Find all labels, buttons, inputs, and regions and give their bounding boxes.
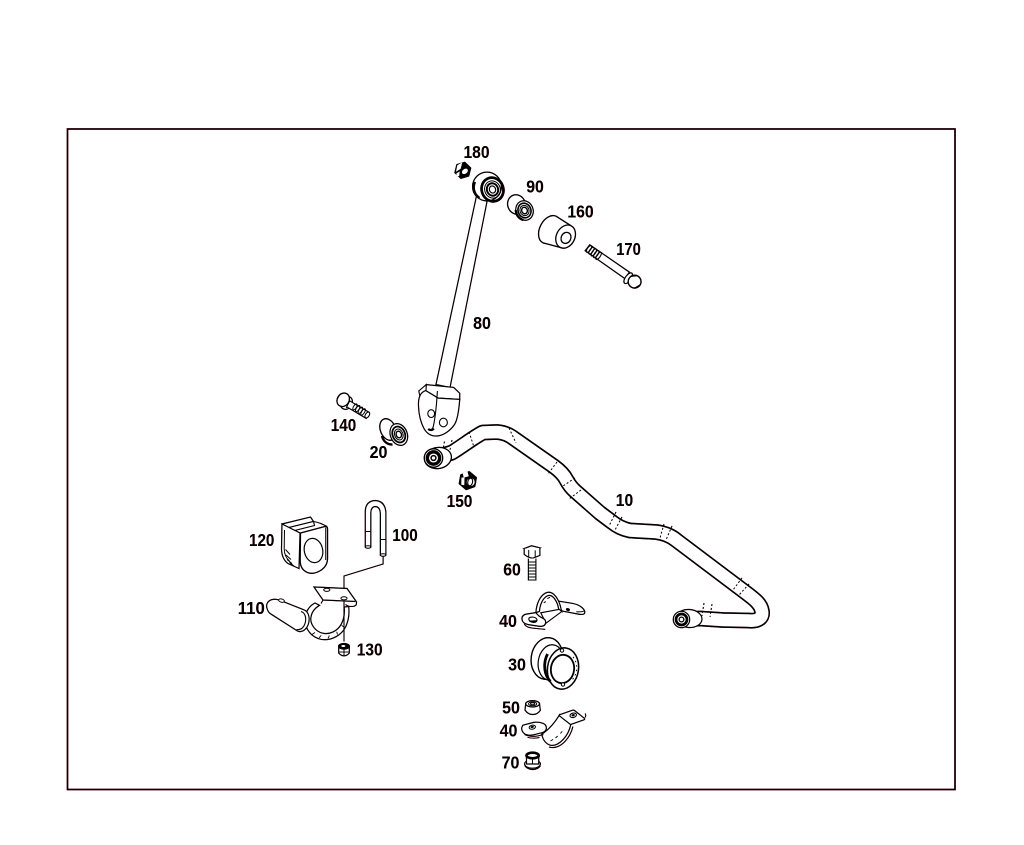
svg-text:130: 130 — [357, 639, 383, 659]
svg-text:160: 160 — [567, 202, 594, 222]
svg-text:70: 70 — [502, 752, 520, 772]
svg-text:180: 180 — [464, 142, 490, 162]
svg-text:110: 110 — [238, 598, 265, 618]
svg-text:100: 100 — [392, 525, 418, 545]
svg-text:90: 90 — [526, 177, 544, 197]
svg-text:120: 120 — [249, 530, 275, 550]
svg-text:60: 60 — [503, 560, 521, 580]
svg-text:30: 30 — [508, 654, 526, 674]
svg-text:40: 40 — [500, 720, 518, 740]
svg-text:150: 150 — [447, 491, 473, 511]
svg-text:20: 20 — [370, 442, 388, 462]
svg-text:140: 140 — [331, 415, 357, 435]
svg-text:40: 40 — [499, 611, 517, 631]
svg-text:80: 80 — [473, 313, 491, 333]
svg-text:10: 10 — [616, 490, 634, 510]
svg-text:170: 170 — [616, 239, 641, 259]
svg-text:50: 50 — [502, 698, 520, 718]
